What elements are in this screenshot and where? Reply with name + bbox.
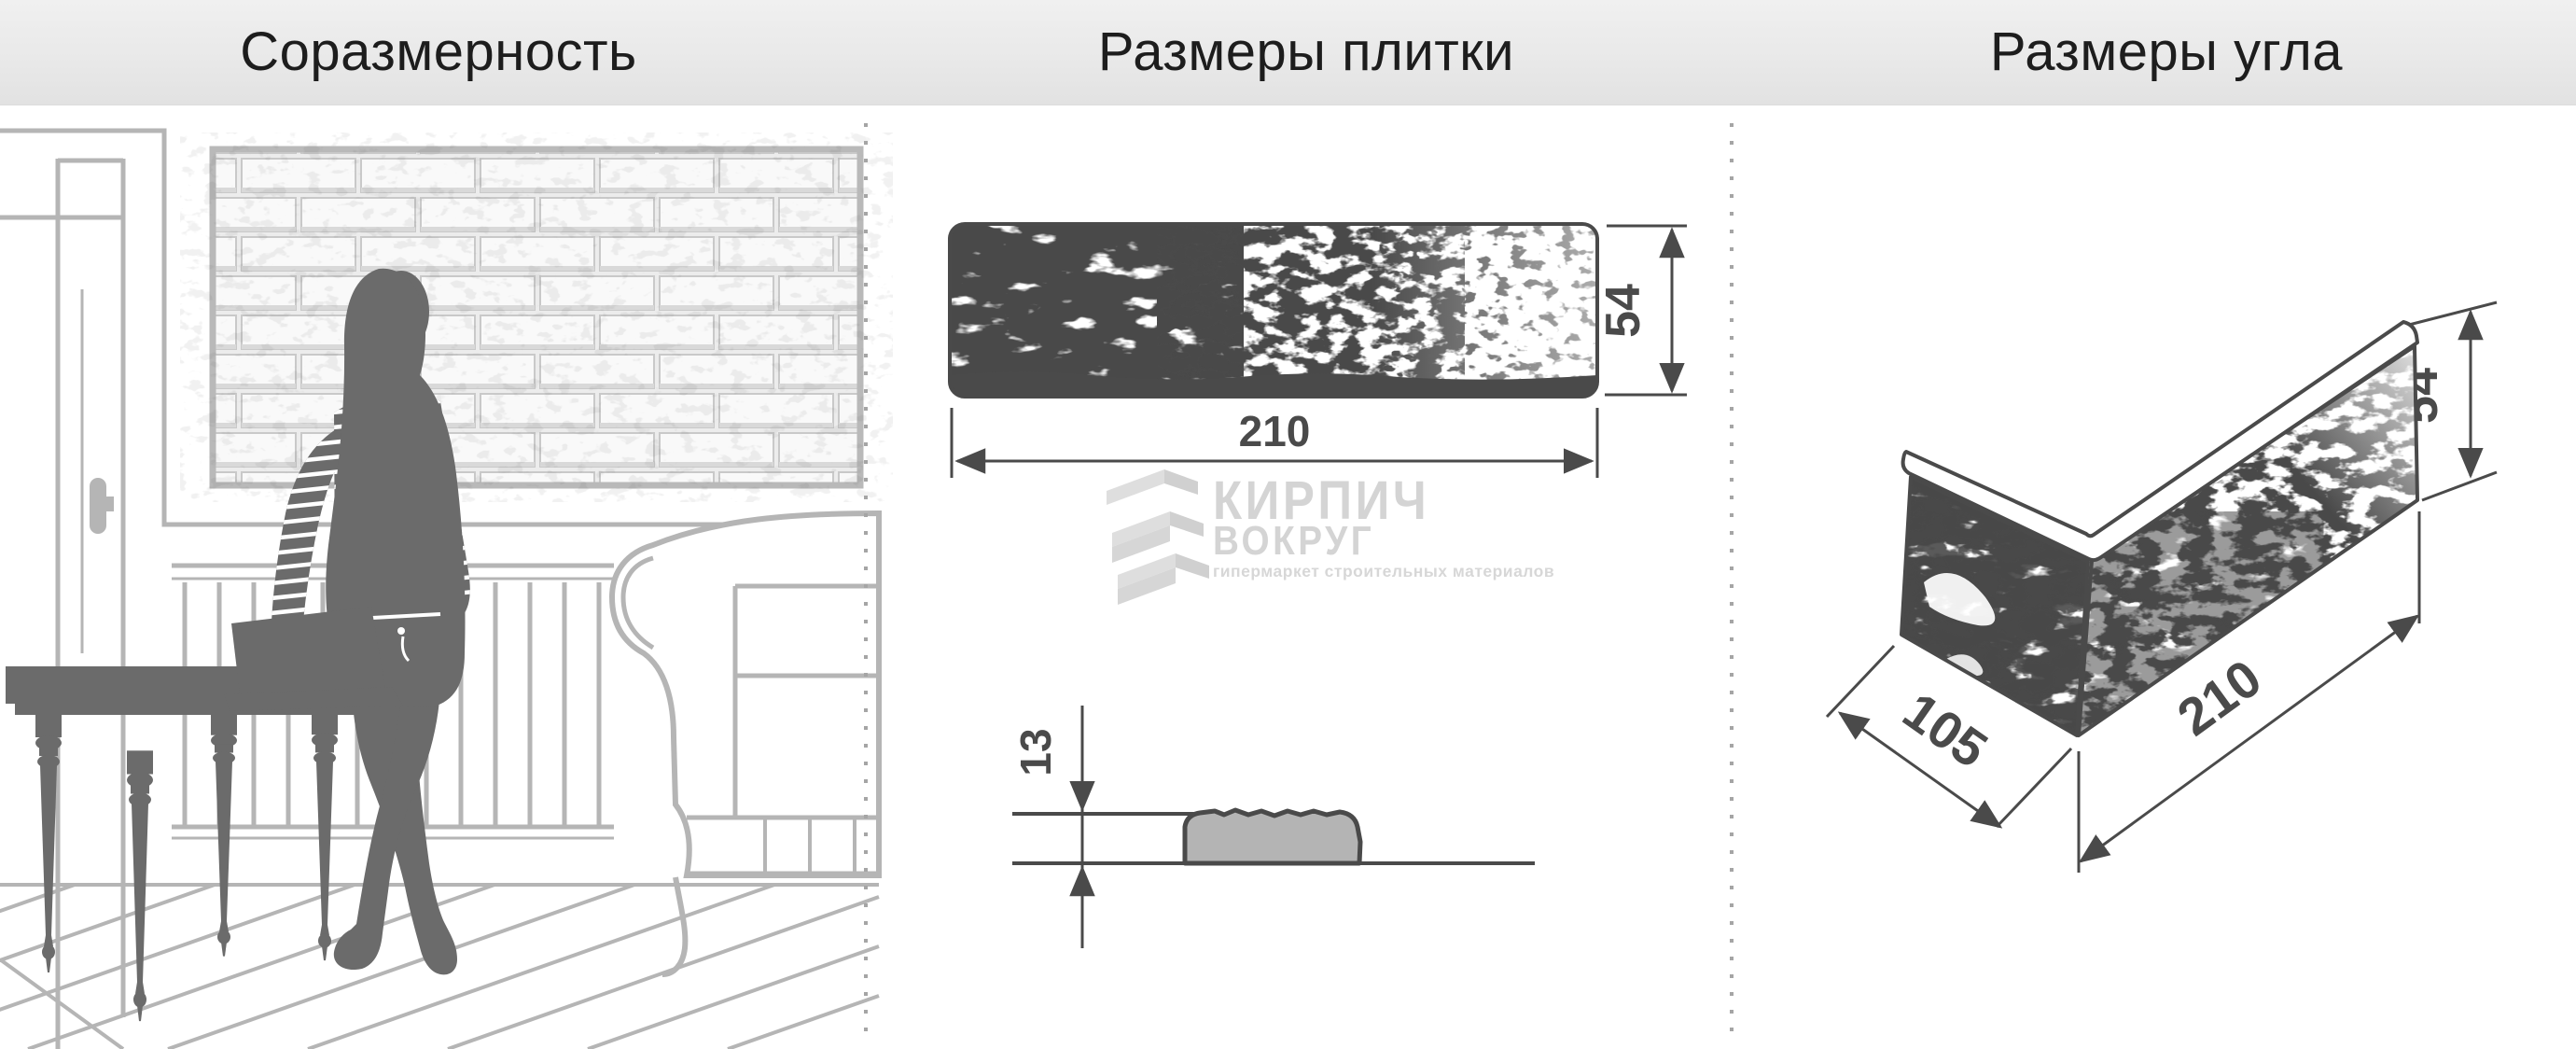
infographic-page: 210 54 КИРПИЧ ВОКРУГ [0,0,2576,1049]
title-proportion: Соразмерность [240,21,637,83]
panel-tile-dimensions: 210 54 КИРПИЧ ВОКРУГ [950,224,1687,948]
tile-thickness-dimension: 13 [1011,706,1082,948]
tile-height-label: 54 [1596,284,1650,338]
panel-divider [1730,123,1734,1040]
logo-tagline: гипермаркет строительных материалов [1213,562,1554,580]
door-handle [90,478,114,534]
title-corner-dimensions: Размеры угла [1990,21,2343,83]
tile-thickness-label: 13 [1011,728,1060,776]
tile-width-label: 210 [1239,407,1311,455]
sofa-outline [612,513,879,974]
header-bar: Соразмерность Размеры плитки Размеры угл… [0,0,2576,105]
panel-proportion-scene [0,131,879,1049]
panel-divider [864,123,868,1040]
brick-wall [213,149,860,485]
tile-width-dimension: 210 [952,407,1597,478]
corner-depth-label: 105 [1893,680,1998,778]
brand-logo: КИРПИЧ ВОКРУГ гипермаркет строительных м… [1107,469,1554,605]
brick-zigzag-icon [1107,469,1209,605]
scene-graphic: 210 54 КИРПИЧ ВОКРУГ [0,0,2576,1049]
logo-word2: ВОКРУГ [1213,517,1374,564]
panel-corner-dimensions: 105 210 54 [1827,302,2497,873]
tile-profile-view: 13 [1011,706,1535,948]
tile-profile-shape [1185,810,1360,863]
tile-front-view [950,224,1597,401]
tile-height-dimension: 54 [1596,226,1687,395]
table-silhouette [6,666,388,1021]
corner-piece [1894,322,2426,747]
title-tile-dimensions: Размеры плитки [1098,21,1514,83]
